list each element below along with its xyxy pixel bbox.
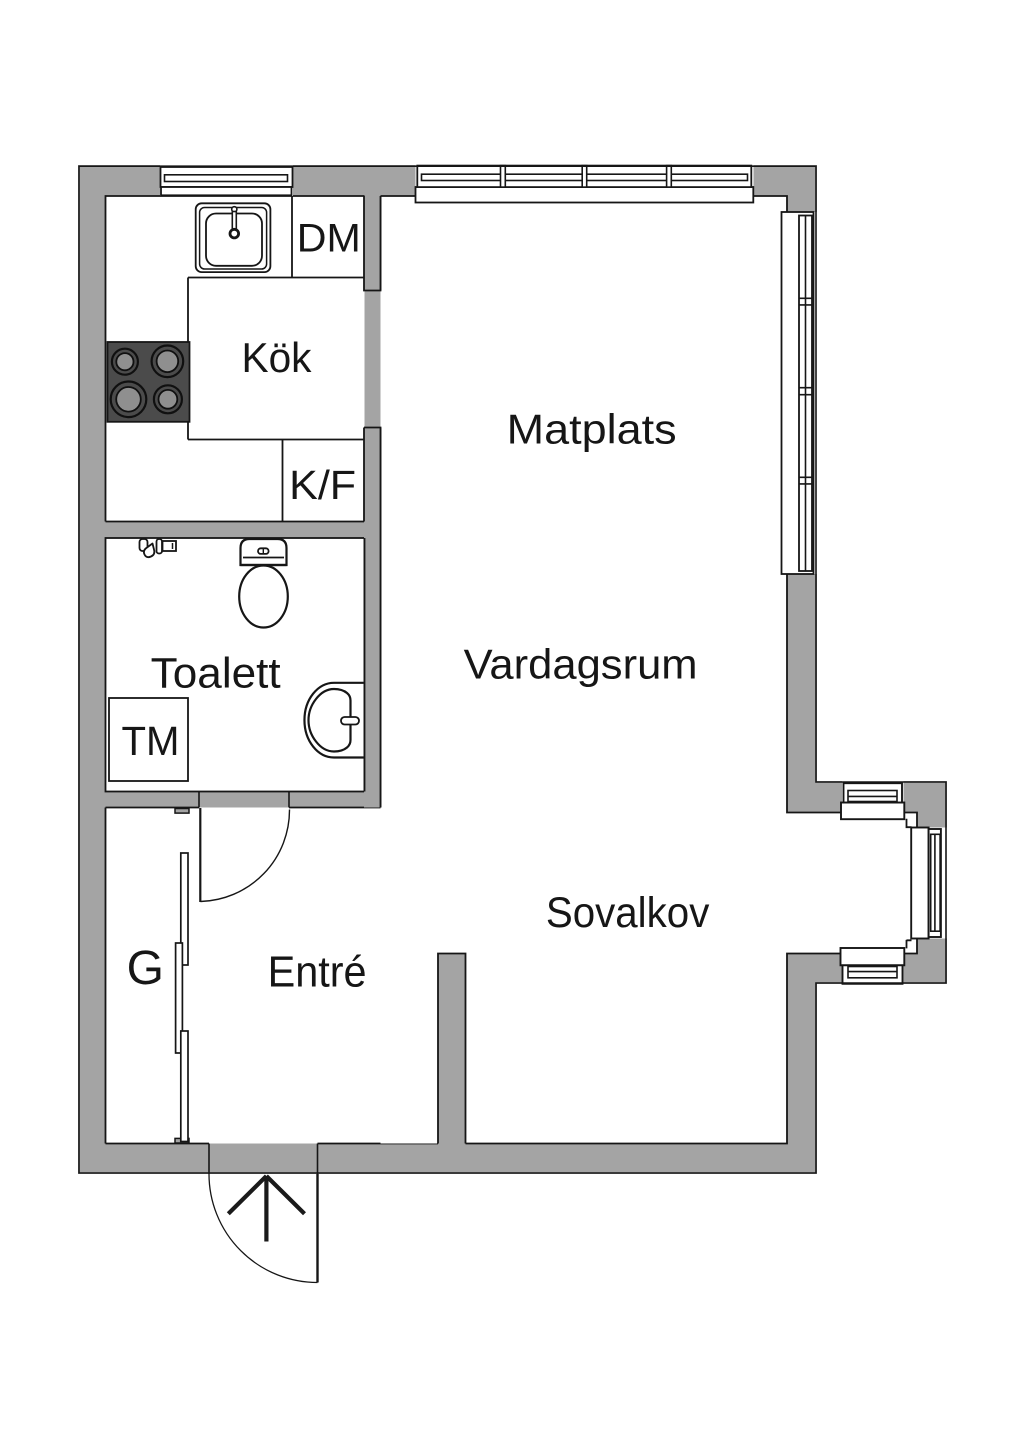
svg-text:Vardagsrum: Vardagsrum bbox=[464, 641, 698, 688]
svg-text:Kök: Kök bbox=[242, 334, 313, 381]
svg-text:TM: TM bbox=[122, 718, 180, 764]
svg-text:Matplats: Matplats bbox=[507, 405, 677, 452]
svg-text:Entré: Entré bbox=[268, 948, 367, 996]
svg-text:Sovalkov: Sovalkov bbox=[546, 889, 710, 937]
svg-text:Toalett: Toalett bbox=[151, 651, 281, 698]
svg-text:G: G bbox=[127, 942, 164, 995]
svg-text:DM: DM bbox=[297, 216, 361, 260]
svg-text:K/F: K/F bbox=[289, 462, 356, 508]
